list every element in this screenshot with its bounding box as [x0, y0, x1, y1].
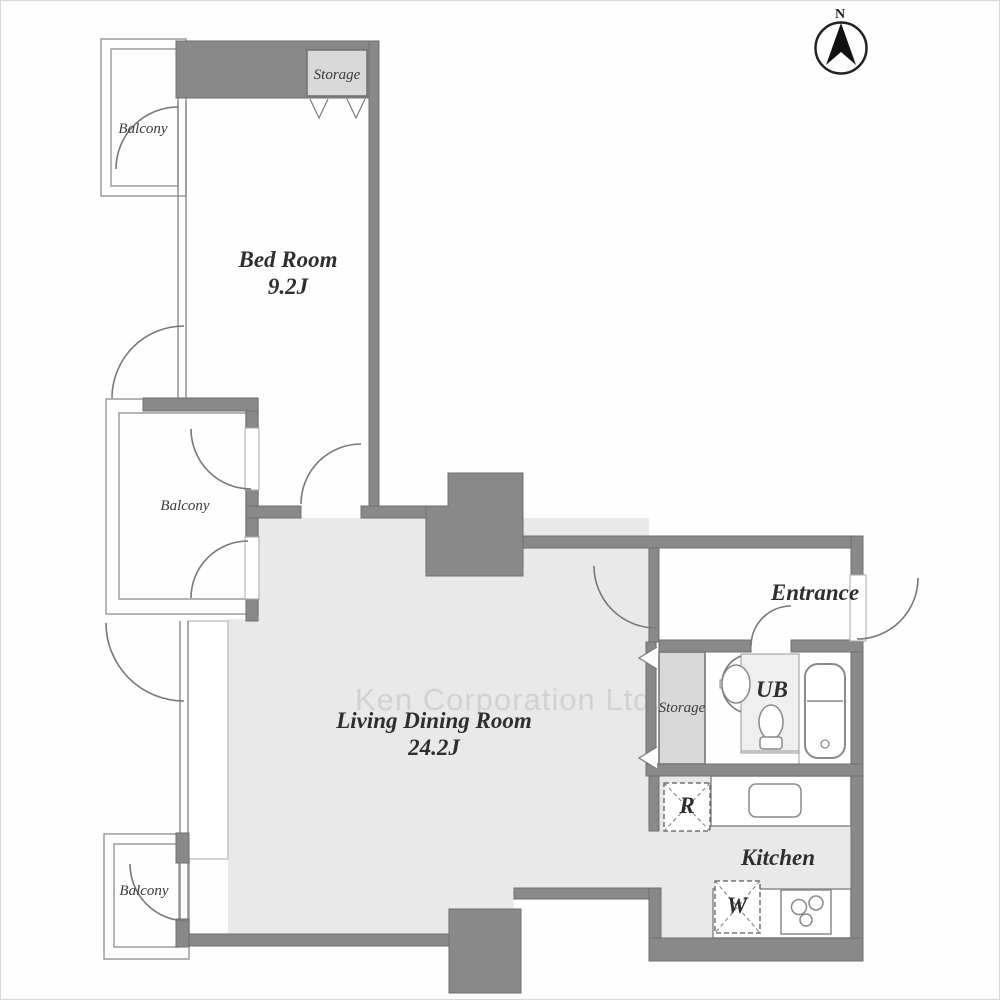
washer-label: W	[727, 893, 749, 918]
kitchen-label: Kitchen	[740, 845, 815, 870]
kitchen-sink	[749, 784, 801, 817]
washroom-storage-label: Storage	[659, 700, 706, 716]
bathtub	[805, 664, 845, 758]
washroom-south-wall	[646, 764, 863, 776]
washroom-door-arc	[751, 606, 791, 646]
bathroom-block	[720, 654, 845, 764]
balcony-middle-label: Balcony	[160, 498, 209, 514]
balcony-door-opening	[245, 537, 259, 599]
balcony-middle-lower-door-arc	[191, 541, 248, 598]
west-floor-strip	[188, 621, 228, 859]
entrance-south-wall	[659, 640, 751, 652]
bedroom-size-label: 9.2J	[268, 274, 310, 299]
entrance-label: Entrance	[770, 580, 859, 605]
living-dining-name-label: Living Dining Room	[335, 708, 532, 733]
balcony-top-door-arc	[116, 107, 178, 169]
balcony-middle-upper-door-arc	[191, 429, 251, 489]
kitchen-west-stub-wall	[649, 776, 659, 831]
compass: N	[816, 7, 867, 74]
living-southwest-wall	[176, 934, 451, 946]
floor-area	[228, 619, 514, 939]
bedroom-west-door-arc	[112, 326, 184, 398]
fold-mark	[347, 99, 365, 118]
balcony-middle-east-wall	[246, 411, 258, 429]
bedroom-living-wall	[246, 506, 301, 518]
structural-column	[426, 473, 523, 576]
floor-plan-drawing: Ken Corporation Ltd.	[1, 1, 1000, 1001]
wash-basin	[722, 665, 750, 703]
west-wall-block	[176, 833, 189, 863]
east-outer-wall	[851, 640, 863, 961]
compass-north-arrow-icon	[826, 23, 856, 65]
living-west-door-arc	[106, 623, 184, 701]
bedroom-door-arc	[301, 444, 361, 504]
bedroom-name-label: Bed Room	[237, 247, 337, 272]
floor-plan: Ken Corporation Ltd.	[0, 0, 1000, 1000]
entrance-north-wall	[523, 536, 863, 548]
living-south-wall	[514, 888, 654, 899]
balcony-door-opening	[245, 428, 259, 490]
south-structural-column	[449, 909, 521, 993]
kitchen-south-wall	[649, 938, 863, 961]
fold-mark	[310, 99, 328, 118]
stove	[781, 890, 831, 934]
refrigerator-label: R	[678, 793, 694, 818]
east-outer-wall	[851, 536, 863, 576]
bedroom-storage-label: Storage	[314, 67, 361, 83]
balcony-middle-north-wall	[143, 398, 258, 411]
unit-bath-label: UB	[756, 677, 788, 702]
compass-north-label: N	[835, 7, 845, 22]
west-wall-block	[176, 919, 189, 947]
toilet-tank	[760, 737, 782, 749]
balcony-top-label: Balcony	[118, 121, 167, 137]
balcony-bottom-label: Balcony	[119, 883, 168, 899]
toilet-bowl	[759, 705, 783, 739]
bedroom-east-wall	[369, 41, 379, 508]
living-dining-size-label: 24.2J	[407, 735, 461, 760]
entrance-south-wall	[791, 640, 863, 652]
balcony-middle-east-wall	[246, 598, 258, 621]
